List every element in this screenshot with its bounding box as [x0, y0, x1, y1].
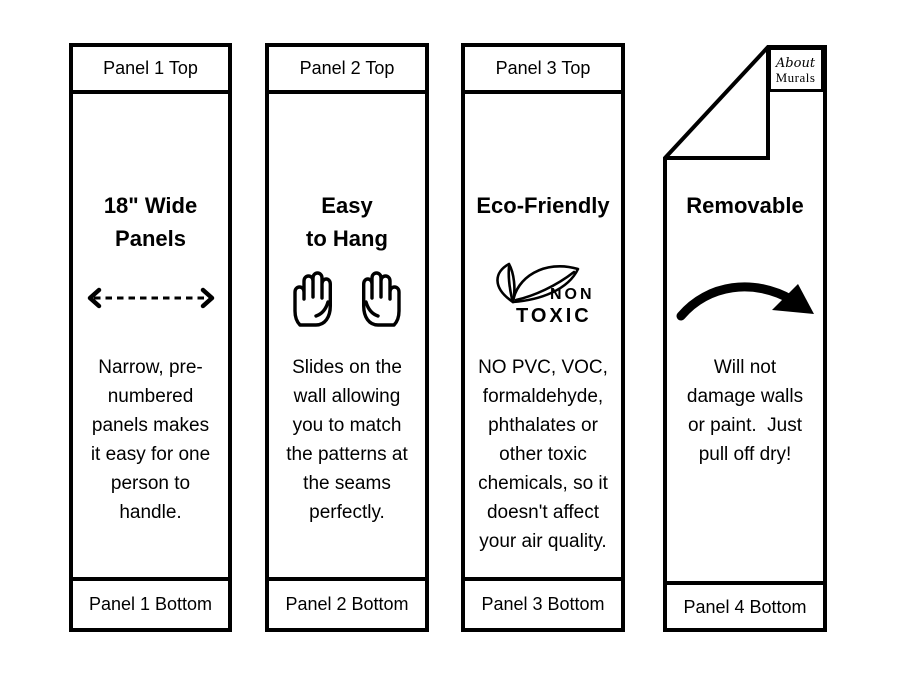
panel-1-top-box: Panel 1 Top [73, 47, 228, 94]
panel-1-bottom-label: Panel 1 Bottom [89, 594, 212, 615]
panel-3-top-label: Panel 3 Top [496, 58, 591, 79]
panel-3-top-box: Panel 3 Top [465, 47, 621, 94]
toxic-label: TOXIC [516, 305, 592, 328]
panel-2-bottom-box: Panel 2 Bottom [269, 577, 425, 628]
panel-3: Panel 3 Top Eco-Friendly NON TOXIC NO PV… [461, 43, 625, 632]
non-label: NON [550, 286, 595, 304]
panel-4-bottom-label: Panel 4 Bottom [683, 597, 806, 618]
removable-swoosh-arrow-icon [676, 272, 816, 322]
panel-2: Panel 2 Top Easy to Hang Slides on the w… [265, 43, 429, 632]
panel-4: About Murals Removable Will not damage w… [663, 43, 827, 632]
panel-4-bottom-box: Panel 4 Bottom [665, 585, 825, 630]
logo-murals-text: Murals [776, 71, 816, 85]
panel-3-bottom-box: Panel 3 Bottom [465, 577, 621, 628]
panel-1: Panel 1 Top 18" Wide Panels Narrow, pre-… [69, 43, 232, 632]
right-hand-icon [356, 268, 404, 328]
mural-panels-infographic: Panel 1 Top 18" Wide Panels Narrow, pre-… [0, 0, 900, 675]
width-dashed-arrow-icon [78, 285, 224, 311]
panel-3-icon-row: NON TOXIC [488, 262, 606, 328]
left-hand-icon [290, 268, 338, 328]
panel-1-top-label: Panel 1 Top [103, 58, 198, 79]
panel-2-heading: Easy to Hang [269, 189, 425, 255]
panel-1-bottom-box: Panel 1 Bottom [73, 577, 228, 628]
panel-2-icon-row [269, 268, 425, 328]
panel-1-heading: 18" Wide Panels [73, 189, 228, 255]
aboutmurals-logo: About Murals [769, 51, 822, 91]
panel-2-body: Slides on the wall allowing you to match… [269, 353, 425, 527]
panel-1-body: Narrow, pre- numbered panels makes it ea… [73, 353, 228, 527]
panel-2-bottom-label: Panel 2 Bottom [285, 594, 408, 615]
panel-4-body: Will not damage walls or paint. Just pul… [663, 353, 827, 469]
panel-1-icon-row [73, 285, 228, 311]
panel-3-heading: Eco-Friendly [465, 189, 621, 222]
panel-2-top-label: Panel 2 Top [300, 58, 395, 79]
panel-4-heading: Removable [663, 189, 827, 222]
panel-3-bottom-label: Panel 3 Bottom [481, 594, 604, 615]
panel-4-folded-outline [663, 43, 827, 632]
panel-2-top-box: Panel 2 Top [269, 47, 425, 94]
panel-3-body: NO PVC, VOC, formaldehyde, phthalates or… [465, 353, 621, 556]
logo-about-text: About [776, 57, 815, 71]
